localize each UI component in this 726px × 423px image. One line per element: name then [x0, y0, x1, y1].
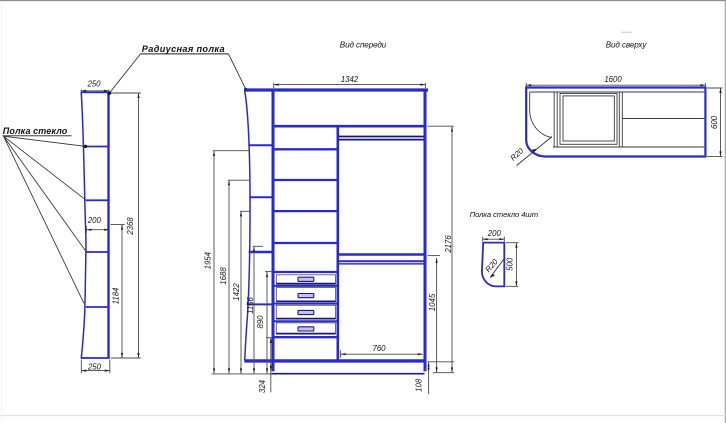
svg-text:1045: 1045 [428, 293, 437, 311]
svg-text:250: 250 [87, 362, 102, 371]
svg-text:Полка стекло: Полка стекло [3, 126, 68, 136]
svg-text:2368: 2368 [126, 217, 135, 236]
svg-text:1954: 1954 [203, 251, 212, 269]
svg-text:Полка стекло 4шт: Полка стекло 4шт [470, 210, 539, 219]
svg-text:Радиусная полка: Радиусная полка [142, 44, 225, 54]
svg-text:500: 500 [506, 257, 515, 271]
svg-text:1184: 1184 [111, 287, 120, 304]
svg-text:1422: 1422 [232, 283, 241, 301]
svg-text:1600: 1600 [604, 75, 622, 84]
svg-text:200: 200 [487, 229, 502, 238]
svg-text:1156: 1156 [246, 296, 255, 313]
svg-text:600: 600 [710, 115, 719, 129]
svg-text:324: 324 [258, 379, 267, 393]
svg-text:890: 890 [256, 315, 265, 329]
svg-text:2176: 2176 [444, 235, 453, 254]
svg-text:Вид сверху: Вид сверху [606, 41, 648, 50]
svg-text:1342: 1342 [341, 75, 359, 84]
svg-text:200: 200 [87, 216, 102, 225]
svg-text:R20: R20 [483, 257, 500, 274]
svg-text:1688: 1688 [219, 267, 228, 285]
svg-text:760: 760 [372, 344, 386, 353]
svg-text:108: 108 [415, 378, 424, 392]
svg-text:Вид спереди: Вид спереди [340, 41, 387, 50]
svg-text:250: 250 [86, 80, 101, 89]
